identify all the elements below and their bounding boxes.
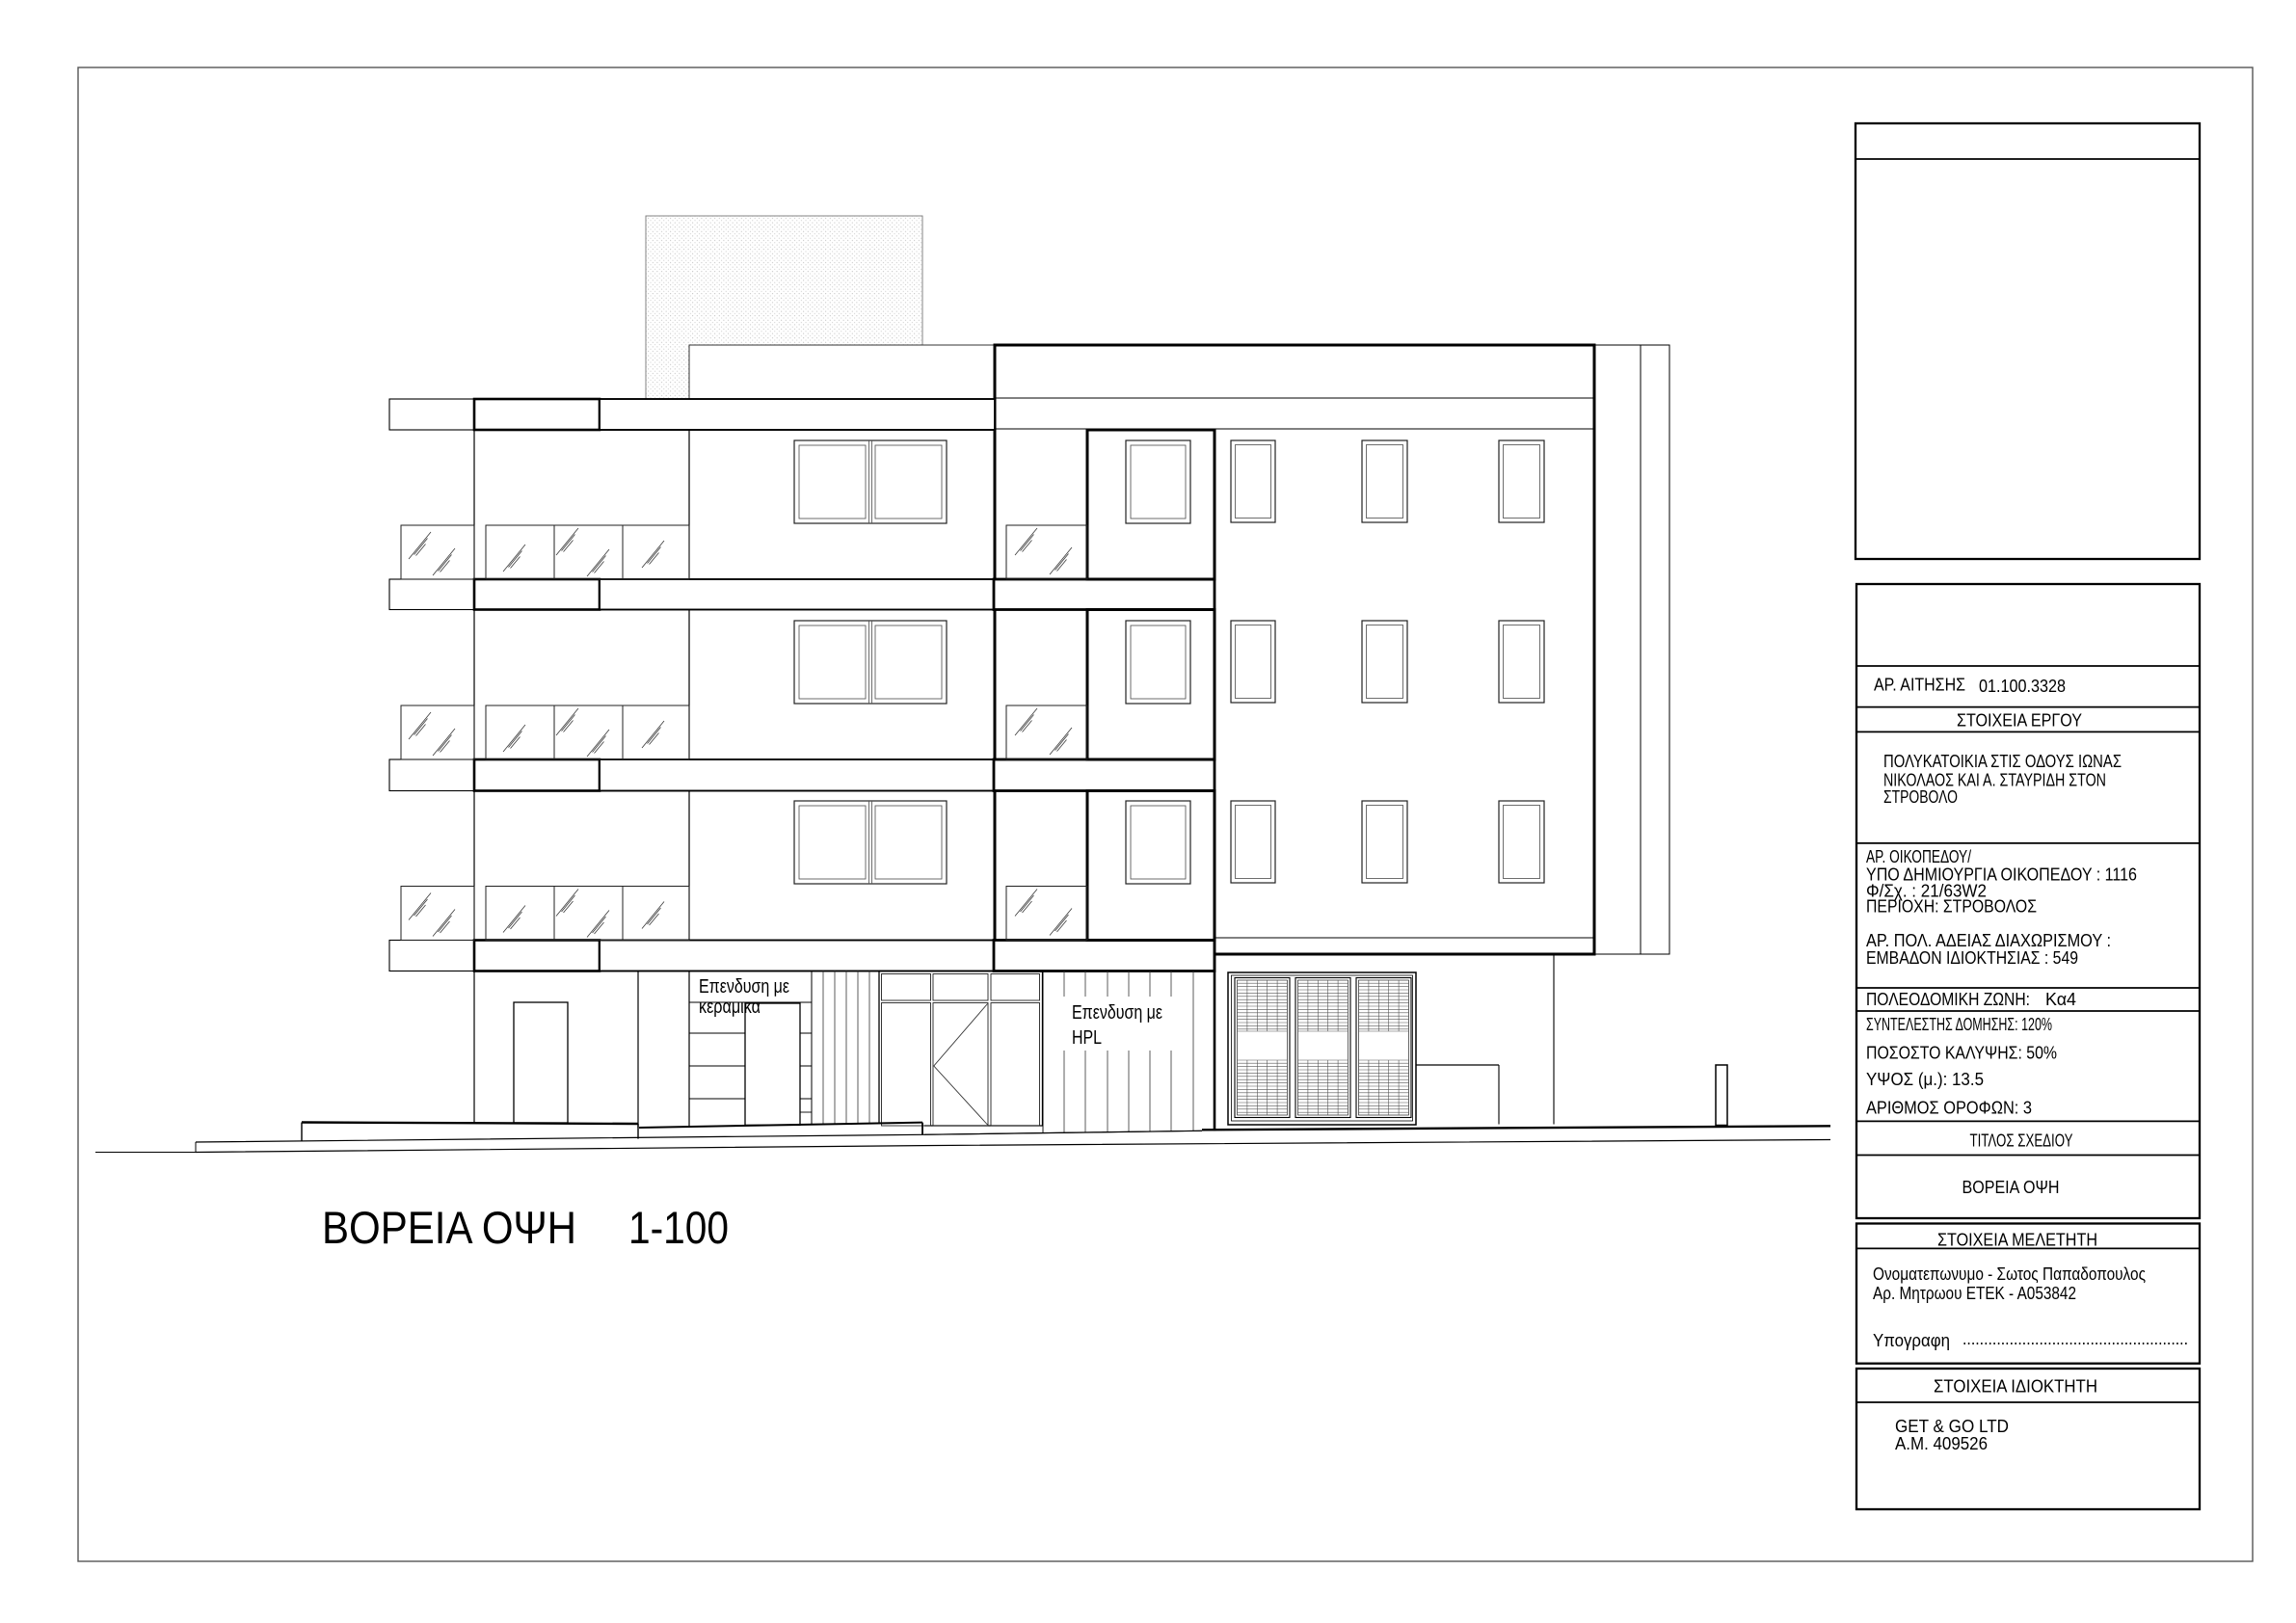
- svg-text:A.M. 409526: A.M. 409526: [1895, 1434, 1988, 1453]
- svg-text:01.100.3328: 01.100.3328: [1979, 677, 2066, 696]
- svg-text:ΣΤΟΙΧΕΙΑ ΜΕΛΕΤΗΤΗ: ΣΤΟΙΧΕΙΑ ΜΕΛΕΤΗΤΗ: [1937, 1231, 2097, 1250]
- svg-text:ΣΤΟΙΧΕΙΑ ΕΡΓΟΥ: ΣΤΟΙΧΕΙΑ ΕΡΓΟΥ: [1957, 711, 2082, 731]
- svg-text:ΣΥΝΤΕΛΕΣΤΗΣ ΔΟΜΗΣΗΣ: 120%: ΣΥΝΤΕΛΕΣΤΗΣ ΔΟΜΗΣΗΣ: 120%: [1866, 1015, 2052, 1034]
- svg-text:Επενδυση με: Επενδυση με: [699, 976, 789, 998]
- svg-text:ΥΨΟΣ (μ.): 13.5: ΥΨΟΣ (μ.): 13.5: [1866, 1070, 1984, 1089]
- svg-text:ΑΡ. ΟΙΚΟΠΕΔΟΥ/: ΑΡ. ΟΙΚΟΠΕΔΟΥ/: [1866, 847, 1971, 866]
- svg-text:ΤΙΤΛΟΣ ΣΧΕΔΙΟΥ: ΤΙΤΛΟΣ ΣΧΕΔΙΟΥ: [1970, 1131, 2073, 1151]
- svg-text:Επενδυση με: Επενδυση με: [1072, 1002, 1162, 1024]
- svg-text:GET & GO LTD: GET & GO LTD: [1895, 1417, 2009, 1436]
- svg-text:ΑΡΙΘΜΟΣ ΟΡΟΦΩΝ: 3: ΑΡΙΘΜΟΣ ΟΡΟΦΩΝ: 3: [1866, 1099, 2032, 1118]
- svg-text:ΣΤΡΟΒΟΛΟ: ΣΤΡΟΒΟΛΟ: [1883, 787, 1958, 807]
- svg-text:ΠΟΛΕΟΔΟΜΙΚΗ ΖΩΝΗ:: ΠΟΛΕΟΔΟΜΙΚΗ ΖΩΝΗ:: [1866, 990, 2030, 1009]
- svg-text:ΑΡ. ΠΟΛ. ΑΔΕΙΑΣ ΔΙΑΧΩΡΙΣΜΟΥ :: ΑΡ. ΠΟΛ. ΑΔΕΙΑΣ ΔΙΑΧΩΡΙΣΜΟΥ :: [1866, 931, 2111, 950]
- svg-text:Ονοματεπωνυμο - Σωτος Παπαδοπο: Ονοματεπωνυμο - Σωτος Παπαδοπουλος: [1873, 1264, 2146, 1284]
- svg-text:..............................: ........................................…: [1962, 1329, 2188, 1348]
- svg-text:ΑΡ. ΑΙΤΗΣΗΣ: ΑΡ. ΑΙΤΗΣΗΣ: [1874, 676, 1965, 695]
- svg-text:HPL: HPL: [1072, 1027, 1102, 1049]
- svg-text:κεραμικα: κεραμικα: [699, 997, 761, 1018]
- svg-text:ΒΟΡΕΙΑ ΟΨΗ: ΒΟΡΕΙΑ ΟΨΗ: [1962, 1178, 2060, 1197]
- svg-text:ΠΟΛΥΚΑΤΟΙΚΙΑ ΣΤΙΣ ΟΔΟΥΣ ΙΩΝΑΣ: ΠΟΛΥΚΑΤΟΙΚΙΑ ΣΤΙΣ ΟΔΟΥΣ ΙΩΝΑΣ: [1883, 752, 2122, 771]
- svg-text:Κα4: Κα4: [2045, 990, 2076, 1009]
- svg-text:Αρ. Μητρωου ΕΤΕΚ - Α053842: Αρ. Μητρωου ΕΤΕΚ - Α053842: [1873, 1284, 2076, 1303]
- svg-text:ΕΜΒΑΔΟΝ ΙΔΙΟΚΤΗΣΙΑΣ : 549: ΕΜΒΑΔΟΝ ΙΔΙΟΚΤΗΣΙΑΣ : 549: [1866, 948, 2078, 968]
- svg-text:ΠΕΡΙΟΧΗ: ΣΤΡΟΒΟΛΟΣ: ΠΕΡΙΟΧΗ: ΣΤΡΟΒΟΛΟΣ: [1866, 897, 2037, 917]
- svg-text:Υπογραφη: Υπογραφη: [1873, 1331, 1950, 1350]
- svg-text:ΒΟΡΕΙΑ ΟΨΗ: ΒΟΡΕΙΑ ΟΨΗ: [322, 1202, 576, 1253]
- svg-text:ΠΟΣΟΣΤΟ ΚΑΛΥΨΗΣ: 50%: ΠΟΣΟΣΤΟ ΚΑΛΥΨΗΣ: 50%: [1866, 1044, 2057, 1063]
- svg-text:1-100: 1-100: [628, 1202, 729, 1253]
- svg-text:ΣΤΟΙΧΕΙΑ ΙΔΙΟΚΤΗΤΗ: ΣΤΟΙΧΕΙΑ ΙΔΙΟΚΤΗΤΗ: [1934, 1377, 2097, 1397]
